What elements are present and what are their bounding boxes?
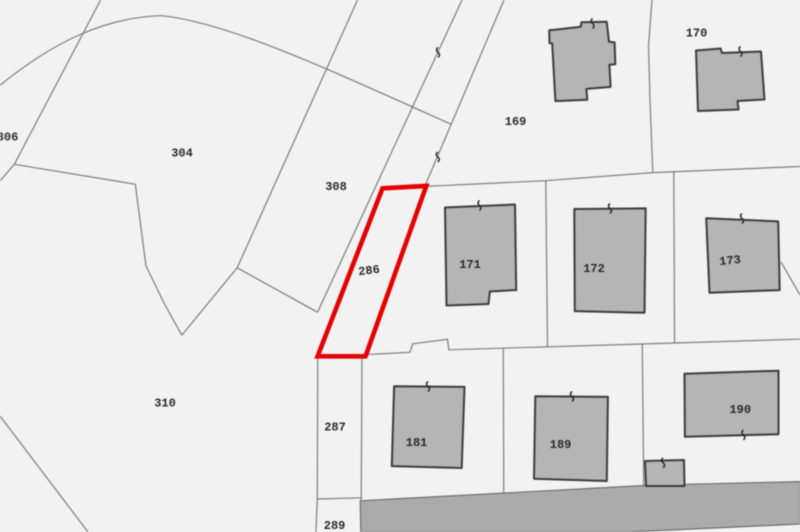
svg-text:306: 306 xyxy=(0,131,18,145)
svg-text:287: 287 xyxy=(324,421,346,435)
svg-text:171: 171 xyxy=(459,258,481,272)
svg-text:289: 289 xyxy=(324,519,346,532)
svg-text:172: 172 xyxy=(583,262,605,276)
svg-text:308: 308 xyxy=(325,180,347,194)
svg-text:286: 286 xyxy=(358,263,381,280)
svg-text:170: 170 xyxy=(686,27,708,41)
svg-text:181: 181 xyxy=(406,436,428,450)
svg-text:190: 190 xyxy=(729,403,751,417)
svg-text:173: 173 xyxy=(719,253,742,269)
svg-text:189: 189 xyxy=(550,438,572,452)
svg-text:169: 169 xyxy=(505,115,527,129)
svg-text:310: 310 xyxy=(154,396,176,410)
svg-text:304: 304 xyxy=(171,147,193,161)
